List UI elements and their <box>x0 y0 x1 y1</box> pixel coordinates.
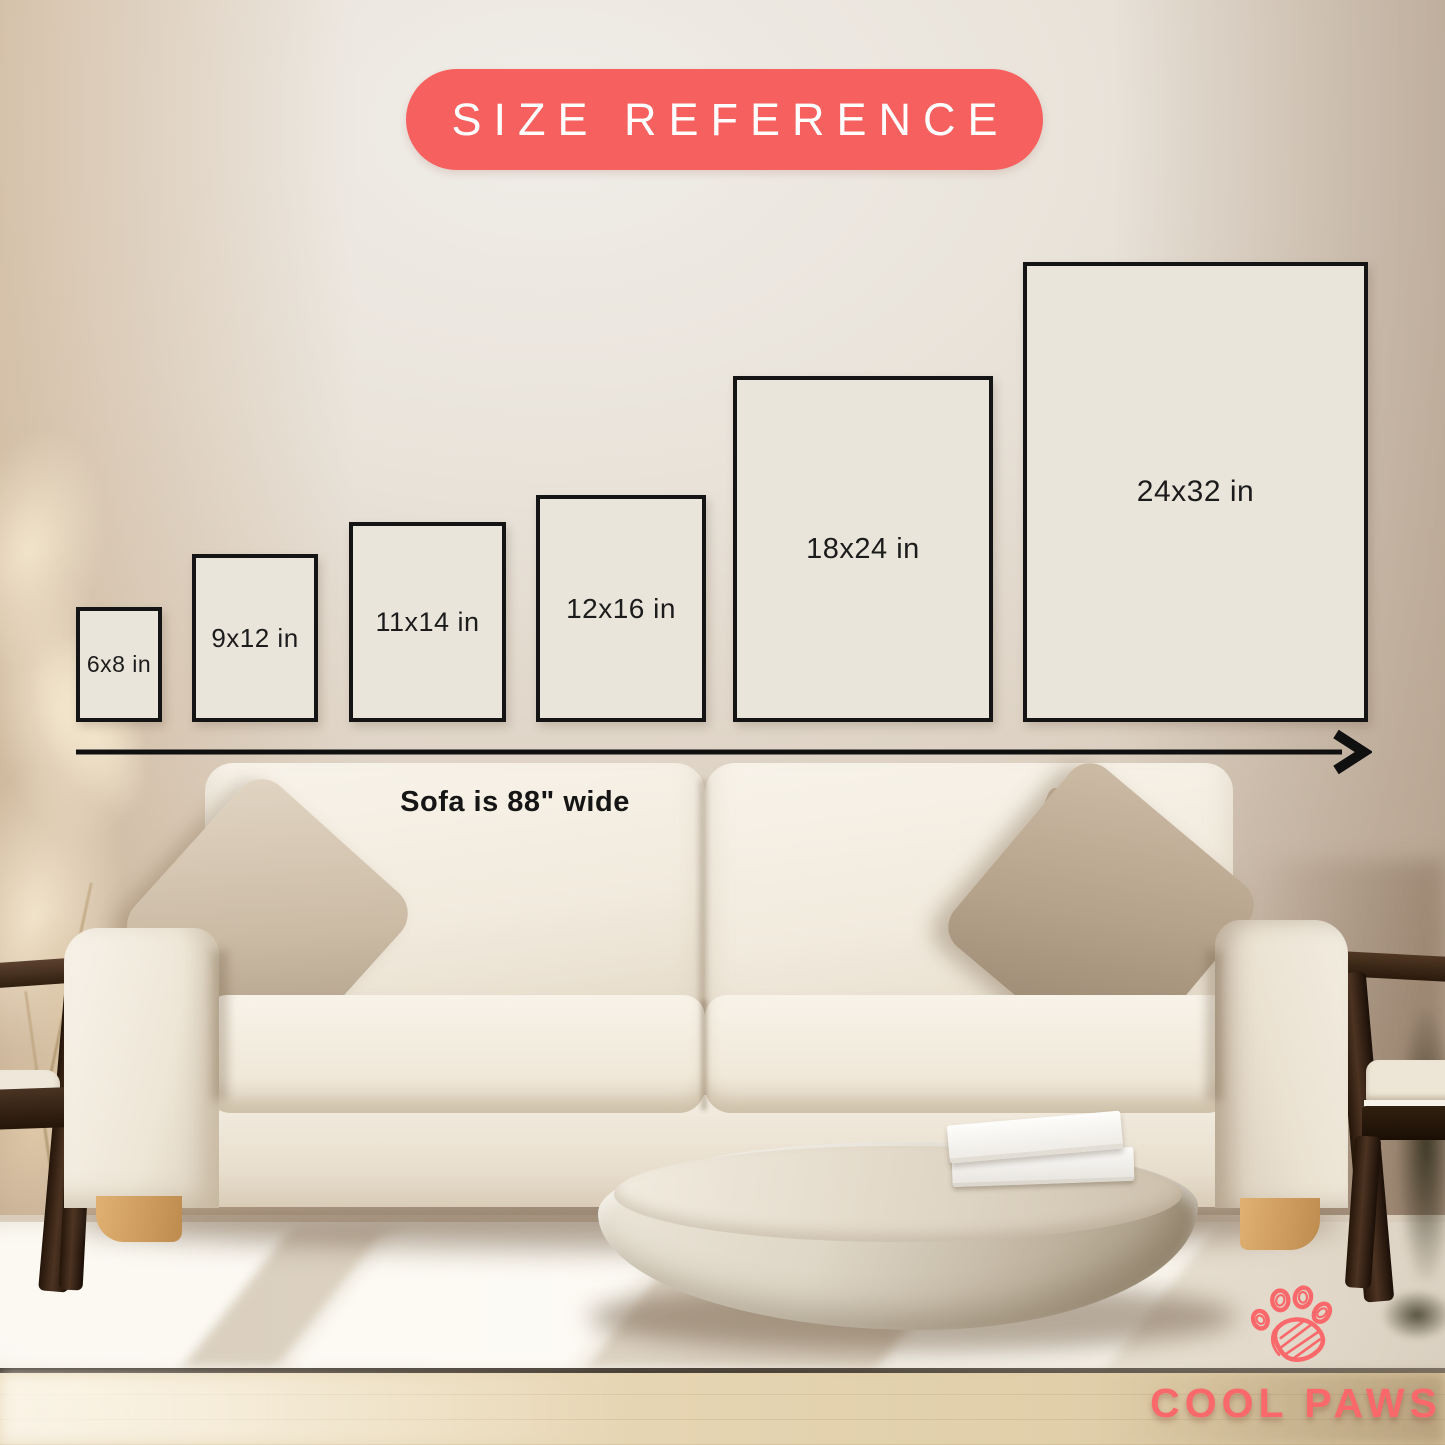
chair-cushion <box>1366 1060 1445 1102</box>
sofa-seat-cushion-right <box>705 995 1233 1113</box>
sofa-arm-left <box>64 928 219 1208</box>
sofa-leg <box>96 1196 182 1242</box>
sofa-seat-seam <box>701 1000 707 1110</box>
sofa-width-caption: Sofa is 88" wide <box>393 786 637 819</box>
badge-label: SIZE REFERENCE <box>439 94 1009 146</box>
wood-floor-sunlight <box>0 1373 640 1445</box>
size-reference-badge: SIZE REFERENCE <box>406 69 1043 170</box>
brand-logo-text: COOL PAWS <box>1148 1380 1444 1427</box>
sofa-back-seam <box>699 780 707 1030</box>
sofa-arm-crease <box>212 950 228 1100</box>
chair-seat-rail <box>1362 1106 1445 1140</box>
sofa-seat-cushion-left <box>205 995 705 1113</box>
paw-icon <box>1243 1279 1343 1368</box>
dark-plant <box>1398 1010 1445 1280</box>
sofa-arm-right <box>1215 920 1348 1208</box>
sofa-arm-crease <box>1206 950 1222 1100</box>
width-arrow <box>70 728 1372 776</box>
sofa-leg <box>1240 1198 1320 1250</box>
size-reference-scene: Sofa is 88" wide SIZE REFERENCE 6x8 in 9… <box>0 0 1445 1445</box>
